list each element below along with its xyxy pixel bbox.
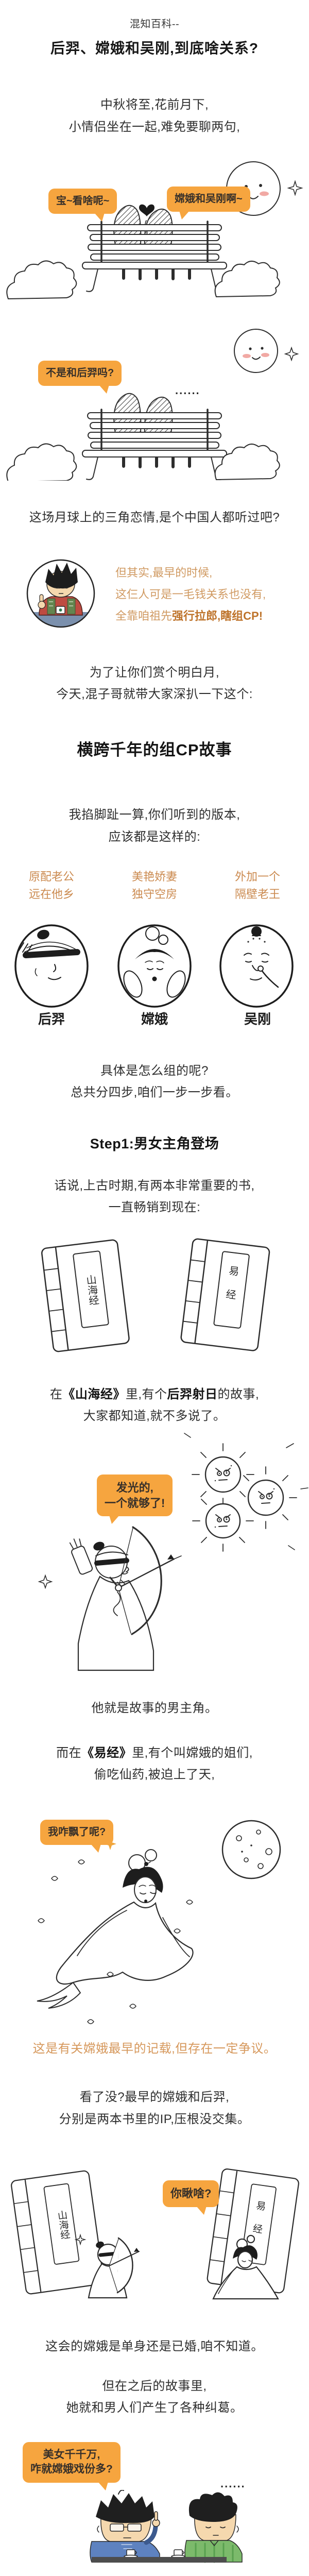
para-triangle: 这场月球上的三角恋情,是个中国人都听过吧? xyxy=(0,507,309,525)
archer-houyi xyxy=(39,1527,174,1670)
book-ref: 《山海经》 xyxy=(62,1387,126,1401)
para-yijing-1: 而在《易经》里,有个叫嫦娥的姐们, xyxy=(0,1742,309,1760)
table xyxy=(92,2557,227,2563)
host-note-line-2: 这仨人可是一毛钱关系也没有, xyxy=(115,585,301,602)
speech-bubble: 不是和后羿吗? xyxy=(38,361,122,386)
para-today-2: 今天,混子哥就带大家深扒一下这个: xyxy=(0,684,309,702)
sparkle-icon xyxy=(288,181,302,195)
name-houyi: 后羿 xyxy=(0,1009,103,1028)
comic-page: 混知百科-- 后羿、嫦娥和吴刚,到底啥关系? 中秋将至,花前月下, 小情侣坐在一… xyxy=(0,0,309,2576)
green-vest xyxy=(47,599,55,614)
tea-cup xyxy=(171,2550,185,2558)
moon-cratered xyxy=(222,1821,280,1878)
name-change: 嫦娥 xyxy=(103,1009,206,1028)
text: 在 xyxy=(50,1387,63,1401)
ellipsis-text: ...... xyxy=(220,2477,246,2490)
speech-bubble-stare: 你瞅啥? xyxy=(163,2180,219,2207)
para-ip-2: 分别是两本书里的IP,压根没交集。 xyxy=(0,2109,309,2127)
para-later-2: 她就和男人们产生了各种纠葛。 xyxy=(0,2397,309,2415)
host-note-prefix: 全靠咱祖先 xyxy=(115,609,172,622)
para-steps-1: 具体是怎么组的呢? xyxy=(0,1060,309,1078)
host-avatar xyxy=(25,557,97,630)
tea-table-scene xyxy=(0,2490,309,2568)
highlight: 后羿射日 xyxy=(167,1387,218,1401)
host-note-line-3: 全靠咱祖先强行拉郎,瞎组CP! xyxy=(115,607,301,623)
para-marital: 这会的嫦娥是单身还是已婚,咱不知道。 xyxy=(0,2336,309,2354)
sun xyxy=(205,1457,241,1492)
speech-bubble-right: 嫦娥和吴刚啊~ xyxy=(167,187,250,212)
tag-wugang-1: 外加一个 xyxy=(206,868,309,884)
para-earliest: 这是有关嫦娥最早的记载,但存在一定争议。 xyxy=(0,2038,309,2056)
ellipsis-text: ...... xyxy=(175,384,200,397)
speech-bubble-moon: 我咋飘了呢? xyxy=(40,1820,113,1845)
para-versions-1: 我掐脚趾一算,你们听到的版本, xyxy=(0,804,309,822)
sparkle-icon xyxy=(285,348,298,360)
tag-houyi-2: 远在他乡 xyxy=(0,885,103,902)
trio-portraits xyxy=(0,921,309,1011)
host-note-suffix: ! xyxy=(259,609,263,622)
park-bench-scene-2-illustration xyxy=(0,326,309,481)
two-books-illustration xyxy=(0,1234,309,1358)
para-shanhai-2: 大家都知道,就不多说了。 xyxy=(0,1405,309,1423)
bush-icon xyxy=(215,444,280,480)
kicker: 混知百科-- xyxy=(0,15,309,30)
houyi-shooting-suns-illustration xyxy=(0,1427,309,1671)
speech-bubble-left: 宝~看啥呢~ xyxy=(48,189,117,214)
guy-green xyxy=(185,2492,242,2562)
section-headline: 横跨千年的组CP故事 xyxy=(0,737,309,760)
step1-title: Step1:男女主角登场 xyxy=(0,1132,309,1153)
suns xyxy=(174,1433,308,1559)
text: 而在 xyxy=(56,1746,81,1760)
host-note-bold: 强行拉郎,瞎组CP xyxy=(172,609,259,622)
tag-houyi-1: 原配老公 xyxy=(0,868,103,884)
bubble-line: 一个就够了! xyxy=(105,1497,165,1510)
intro-line-2: 小情侣坐在一起,难免要聊两句, xyxy=(0,116,309,134)
intro-line-1: 中秋将至,花前月下, xyxy=(0,94,309,112)
para-versions-2: 应该都是这样的: xyxy=(0,826,309,844)
page-title: 后羿、嫦娥和吴刚,到底啥关系? xyxy=(0,37,309,58)
speech-bubble-tea: 美女千千万,咋就嫦娥戏份多? xyxy=(23,2442,121,2483)
change-figure xyxy=(37,1850,193,2008)
bubble-line: 美女千千万, xyxy=(43,2449,100,2461)
moon-blush-icon xyxy=(234,329,278,372)
tag-change-1: 美艳娇妻 xyxy=(103,868,206,884)
para-yijing-2: 偷吃仙药,被迫上了天, xyxy=(0,1764,309,1782)
bubble-line: 咋就嫦娥戏份多? xyxy=(30,2463,113,2475)
guy-blue xyxy=(90,2490,160,2562)
para-today-1: 为了让你们赏个明白月, xyxy=(0,662,309,680)
text: 的故事, xyxy=(218,1387,260,1401)
bush-icon xyxy=(7,444,76,481)
sparkle-icon xyxy=(39,1575,51,1588)
para-steps-2: 总共分四步,咱们一步一步看。 xyxy=(0,1082,309,1100)
portrait-houyi xyxy=(15,925,88,1007)
para-later-1: 但在之后的故事里, xyxy=(0,2376,309,2394)
sun xyxy=(248,1480,283,1515)
name-wugang: 吴刚 xyxy=(206,1009,309,1028)
book-ref: 《易经》 xyxy=(81,1746,132,1760)
host-note-line-1: 但其实,最早的时候, xyxy=(115,564,301,580)
portrait-change xyxy=(118,925,191,1007)
text: 里,有个 xyxy=(126,1387,167,1401)
speech-bubble-sun: 发光的,一个就够了! xyxy=(97,1475,173,1516)
para-shanhai-1: 在《山海经》里,有个后羿射日的故事, xyxy=(0,1384,309,1402)
tag-wugang-2: 隔壁老王 xyxy=(206,885,309,902)
text: 里,有个叫嫦娥的姐们, xyxy=(132,1746,253,1760)
para-ip-1: 看了没?最早的嫦娥和后羿, xyxy=(0,2087,309,2105)
bush-icon xyxy=(7,261,76,299)
tag-change-2: 独守空房 xyxy=(103,885,206,902)
bubble-line: 发光的, xyxy=(116,1481,153,1494)
portrait-wugang xyxy=(220,925,293,1007)
sun xyxy=(206,1504,240,1538)
para-hero: 他就是故事的男主角。 xyxy=(0,1698,309,1716)
para-books-2: 一直畅销到现在: xyxy=(0,1197,309,1215)
para-books-1: 话说,上古时期,有两本非常重要的书, xyxy=(0,1175,309,1193)
park-bench-scene-1-illustration xyxy=(0,159,309,314)
